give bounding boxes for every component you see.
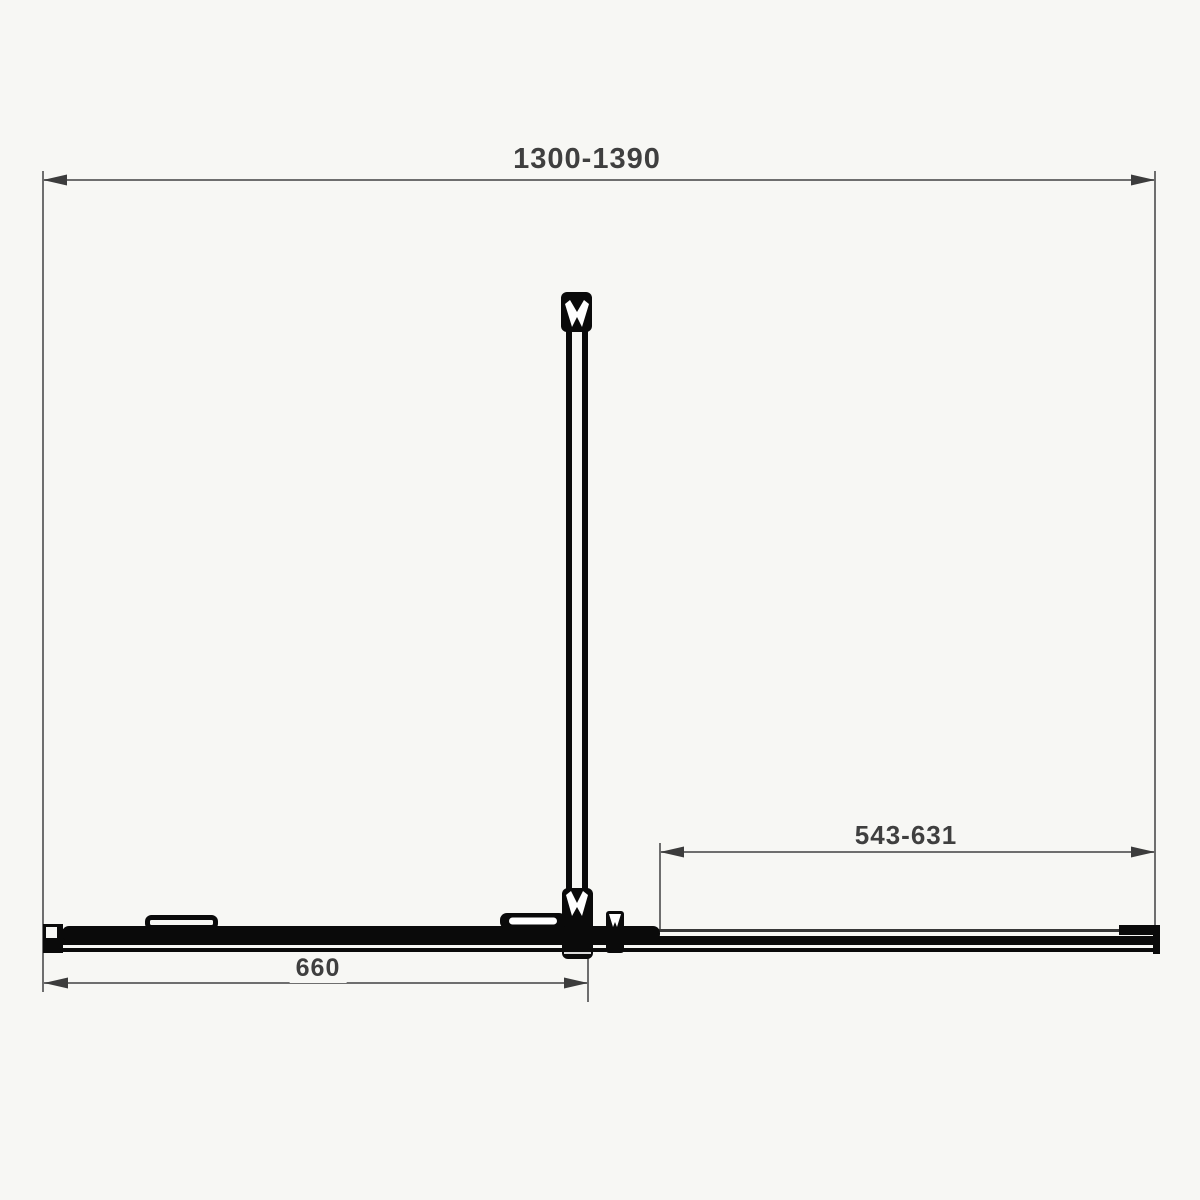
left-wall-bracket-inset [46, 927, 57, 938]
return-panel-glass-edge-right [582, 326, 588, 892]
opening-width-dimension [660, 843, 1155, 931]
dimension-label-opening-width: 543-631 [849, 821, 963, 850]
dimension-label-overall-width: 1300-1390 [507, 144, 667, 176]
dimension-label-door-width: 660 [290, 955, 347, 983]
opening-right-arrow [1131, 847, 1155, 858]
door-left-arrow [44, 978, 68, 989]
door-roller-clamp-slot [509, 918, 557, 925]
door-handle [148, 918, 216, 928]
door-right-arrow [564, 978, 588, 989]
track-bottom-line [43, 948, 1160, 952]
overall-width-dimension [43, 171, 1155, 992]
opening-left-arrow [660, 847, 684, 858]
enclosure-linework [0, 0, 1200, 1200]
return-panel [561, 292, 593, 959]
return-panel-glass-edge-left [566, 326, 572, 892]
overall-right-arrow [1131, 175, 1155, 186]
track-right-end-edge [1153, 925, 1160, 954]
diagram-canvas: 1300-1390 543-631 660 [0, 0, 1200, 1200]
overall-left-arrow [43, 175, 67, 186]
